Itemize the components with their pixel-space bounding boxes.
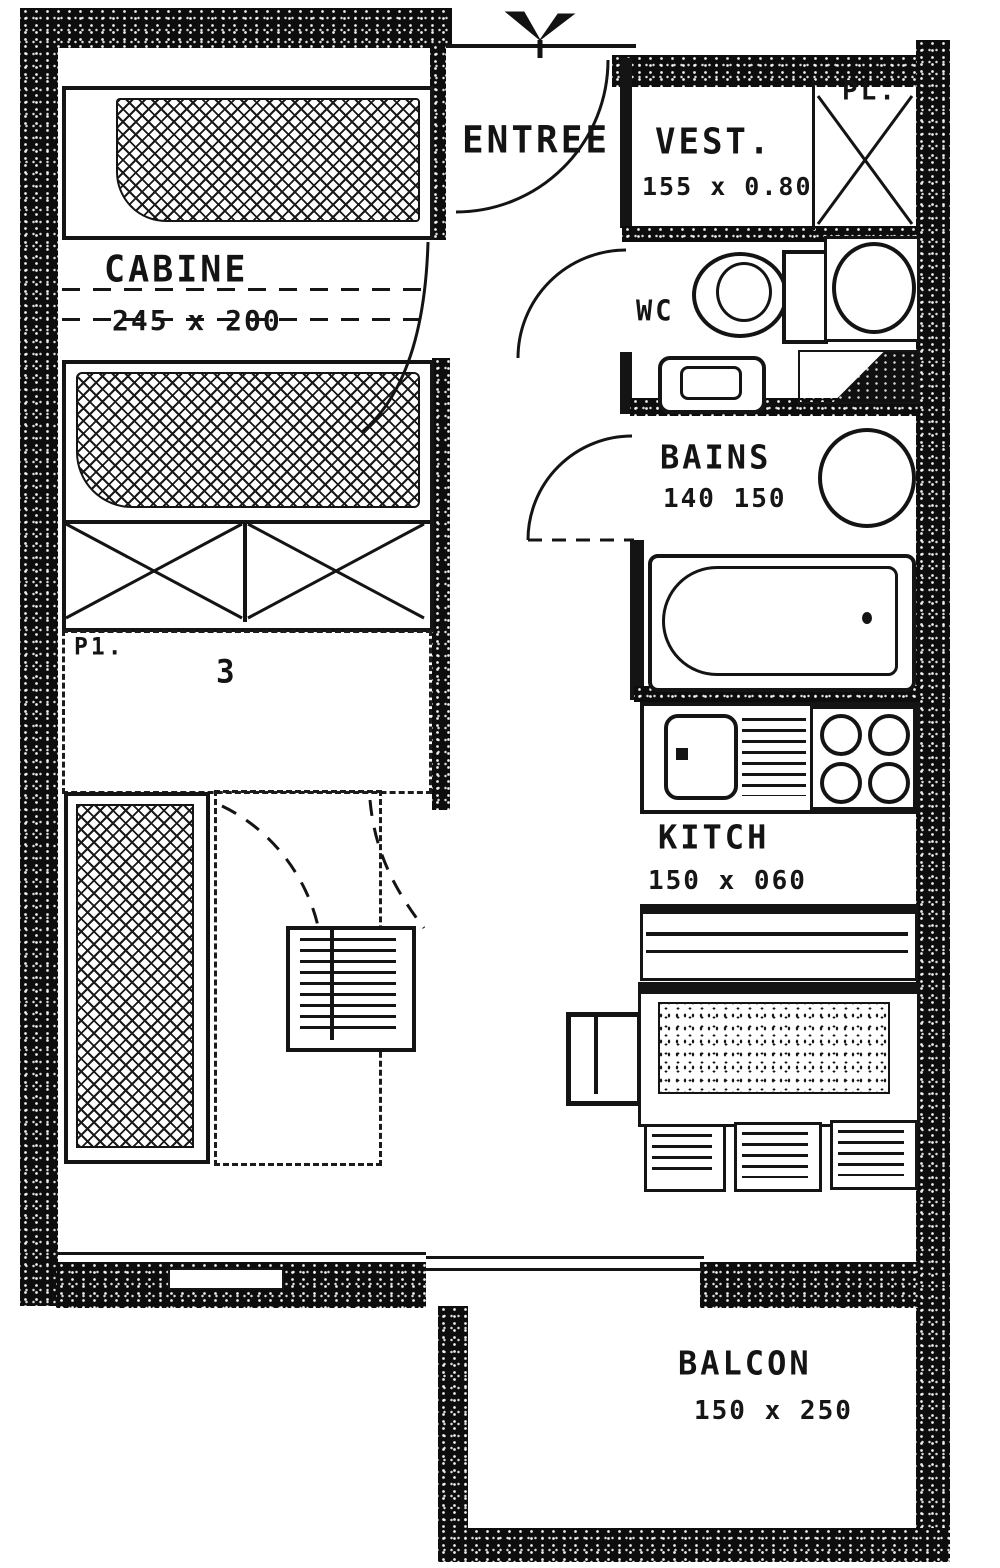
vest-label: VEST. [655, 121, 772, 163]
wall-cabin-hall-bottom [432, 358, 450, 810]
bathtub-drain [862, 612, 872, 624]
cabine-label: CABINE [104, 249, 248, 291]
kitchen-sink-drain [676, 748, 688, 760]
entree-label: ENTREE [462, 119, 610, 162]
bunk-bed-top-mattress [116, 98, 420, 222]
wc-washbasin [832, 242, 916, 334]
bains-label: BAINS [660, 437, 771, 477]
wall-bottom-mid [700, 1262, 918, 1308]
stove-burner-2 [868, 714, 910, 756]
stove-burner-3 [820, 762, 862, 804]
fold-steps-slats [300, 938, 396, 1032]
wall-balcony-bottom [438, 1528, 950, 1562]
door-arc-bains [528, 436, 632, 540]
bunk-bed-lower-mattress [76, 372, 420, 508]
balcon-dims: 150 x 250 [694, 1396, 853, 1426]
pl-closet-left-edge [812, 80, 815, 230]
wall-vest-left [620, 58, 632, 228]
kitch-label: KITCH [658, 817, 769, 857]
pl-label: PL. [842, 75, 898, 106]
floor-edge-living [56, 1252, 426, 1255]
balcon-label: BALCON [678, 1343, 812, 1383]
wall-balcony-left [438, 1306, 468, 1562]
balcony-door-line-1 [426, 1256, 704, 1259]
p1-label: P1. [74, 633, 125, 660]
sofa-bed-left-mattress [76, 804, 194, 1148]
counter-line-2 [646, 950, 908, 953]
side-table [566, 1012, 642, 1106]
bains-washbasin [818, 428, 916, 528]
wall-right [916, 40, 950, 1562]
vest-dims: 155 x 0.80 [642, 172, 813, 201]
bains-dims: 140 150 [663, 484, 787, 514]
door-arc-wc [518, 250, 626, 358]
north-arrow-icon [506, 12, 574, 58]
kitchen-drainboard [742, 718, 806, 796]
stove-burner-1 [820, 714, 862, 756]
wc-hand-sink-inner [680, 366, 742, 400]
cabine-dash-1 [62, 288, 430, 291]
stool-1-slats [652, 1134, 712, 1178]
wardrobe-divider [243, 522, 247, 622]
dining-sofa-cushion [658, 1002, 890, 1094]
kitch-dims: 150 x 060 [648, 866, 807, 896]
window-living [168, 1268, 284, 1290]
wall-bains-left [630, 540, 644, 700]
stool-3-slats [838, 1130, 904, 1176]
balcony-door-line-2 [426, 1268, 704, 1271]
counter-line-1 [646, 932, 908, 936]
entrance-threshold [446, 44, 636, 48]
wardrobe [62, 520, 434, 632]
pl-closet-x-icon [818, 96, 912, 224]
toilet-cistern [782, 250, 828, 344]
zone-number: 3 [216, 653, 238, 690]
toilet-bowl-inner [716, 262, 772, 322]
fold-steps-divider [330, 930, 334, 1040]
cabine-dash-2 [62, 318, 430, 321]
wall-left [20, 8, 58, 1306]
wall-top-left [20, 8, 452, 48]
counter-table [640, 904, 918, 981]
floor-plan: ENTREE VEST. 155 x 0.80 PL. WC CABINE 24… [0, 0, 1000, 1568]
stove-burner-4 [868, 762, 910, 804]
wc-label: WC [636, 295, 675, 327]
stool-2-slats [742, 1132, 808, 1178]
side-table-divider [594, 1014, 598, 1094]
duct-hatch-block [798, 350, 920, 404]
